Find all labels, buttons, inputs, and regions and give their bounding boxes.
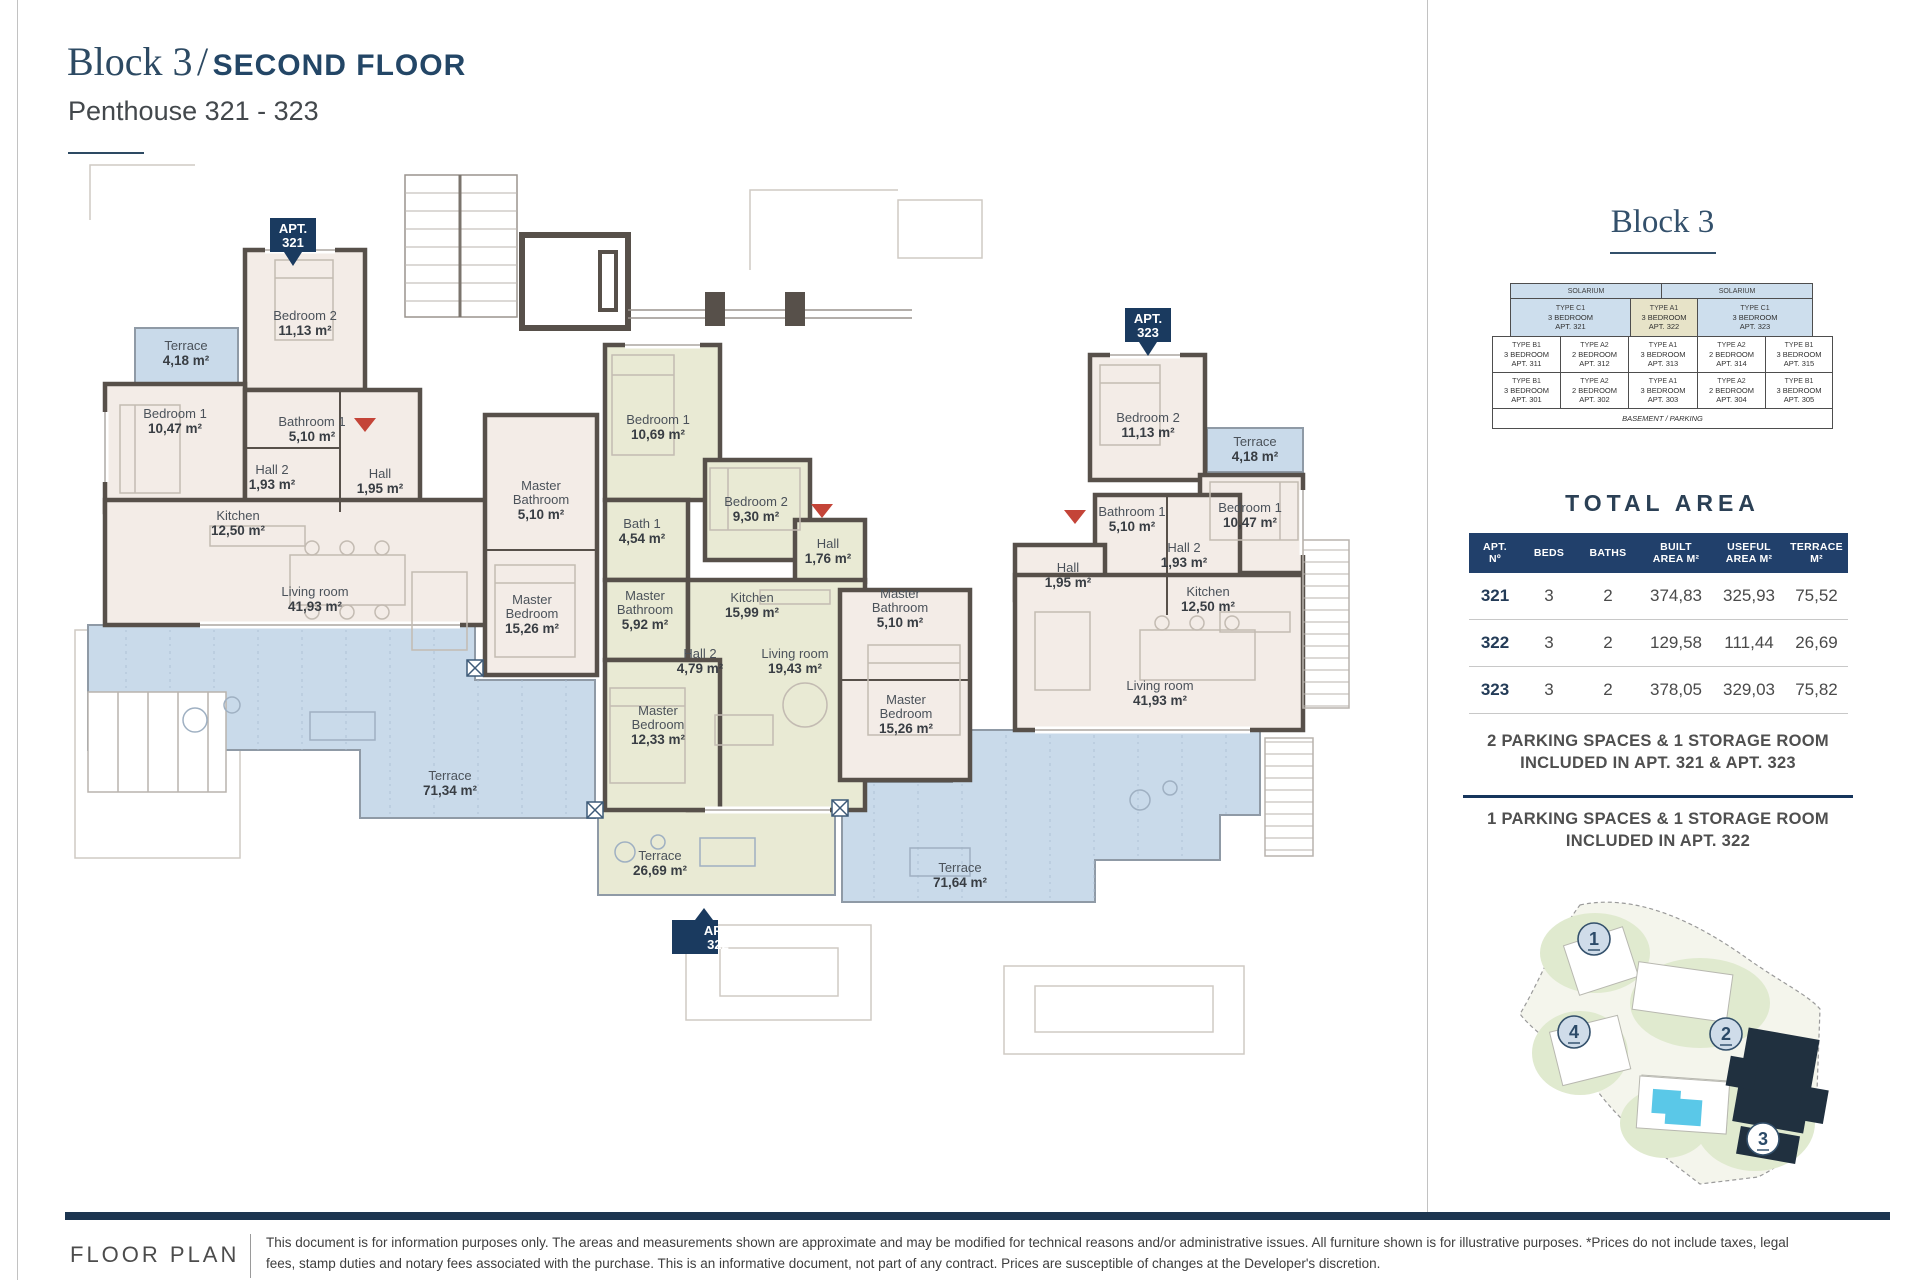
- table-row: 323 3 2 378,05 329,03 75,82: [1469, 667, 1848, 714]
- room-label: Bedroom 110,47 m²: [143, 406, 207, 436]
- site-marker-2: 2: [1710, 1018, 1742, 1050]
- room-label: MasterBathroom5,10 m²: [872, 586, 928, 630]
- room-label: Living room41,93 m²: [1126, 678, 1193, 708]
- footer-disclaimer: This document is for information purpose…: [266, 1232, 1866, 1274]
- parking-note-322: 1 PARKING SPACES & 1 STORAGE ROOM INCLUD…: [1460, 808, 1856, 852]
- room-label: Terrace4,18 m²: [1232, 434, 1279, 464]
- stack-apt-311: TYPE B13 BEDROOMAPT. 311: [1492, 336, 1561, 373]
- building-stack-diagram: SOLARIUM SOLARIUM TYPE C13 BEDROOMAPT. 3…: [1490, 283, 1835, 429]
- page-subtitle: Penthouse 321 - 323: [68, 96, 319, 127]
- footer-accent-bar: [65, 1212, 1890, 1220]
- footer-divider: [250, 1234, 251, 1278]
- room-label: Kitchen12,50 m²: [211, 508, 266, 538]
- room-label: Kitchen12,50 m²: [1181, 584, 1236, 614]
- elevator-shaft: [522, 235, 628, 328]
- svg-text:APT.322: APT.322: [704, 923, 732, 952]
- page-title-separator: /: [197, 39, 208, 84]
- parking-note-321-323: 2 PARKING SPACES & 1 STORAGE ROOM INCLUD…: [1460, 730, 1856, 774]
- table-row: 321 3 2 374,83 325,93 75,52: [1469, 573, 1848, 620]
- apt-322-badge: APT.322: [672, 908, 732, 954]
- stack-apt-302: TYPE A22 BEDROOMAPT. 302: [1560, 372, 1629, 409]
- stack-apt-321: TYPE C13 BEDROOMAPT. 321: [1510, 298, 1631, 337]
- column-header: BUILTAREA M²: [1639, 541, 1713, 565]
- stack-apt-313: TYPE A13 BEDROOMAPT. 313: [1628, 336, 1698, 373]
- room-label: Living room19,43 m²: [761, 646, 828, 676]
- room-label: Bedroom 110,69 m²: [626, 412, 690, 442]
- room-label: MasterBedroom12,33 m²: [631, 703, 686, 747]
- room-label: Bedroom 29,30 m²: [724, 494, 788, 524]
- stack-apt-315: TYPE B13 BEDROOMAPT. 315: [1765, 336, 1833, 373]
- stack-apt-312: TYPE A22 BEDROOMAPT. 312: [1560, 336, 1629, 373]
- site-map: 1 4 2 3: [1500, 893, 1882, 1188]
- footer-label: FLOOR PLAN: [70, 1242, 239, 1268]
- room-label: Terrace71,34 m²: [423, 768, 478, 798]
- column-header: APT.Nº: [1469, 541, 1521, 565]
- stack-apt-305: TYPE B13 BEDROOMAPT. 305: [1765, 372, 1833, 409]
- site-marker-4: 4: [1558, 1016, 1590, 1048]
- site-pool: [1636, 1076, 1729, 1134]
- room-label: Terrace26,69 m²: [633, 848, 688, 878]
- room-label: MasterBathroom5,10 m²: [513, 478, 569, 522]
- svg-text:1: 1: [1589, 929, 1599, 949]
- room-label: Bedroom 211,13 m²: [273, 308, 337, 338]
- stack-basement: BASEMENT / PARKING: [1492, 408, 1833, 429]
- room-label: Kitchen15,99 m²: [725, 590, 780, 620]
- column-header: BEDS: [1521, 547, 1577, 559]
- page-title-floor: SECOND FLOOR: [213, 49, 467, 82]
- room-label: Living room41,93 m²: [281, 584, 348, 614]
- site-marker-1: 1: [1578, 923, 1610, 955]
- page-left-border: [17, 0, 18, 1280]
- total-area-title: TOTAL AREA: [1490, 490, 1835, 517]
- column-header: TERRACEM²: [1785, 541, 1848, 565]
- stack-apt-323: TYPE C13 BEDROOMAPT. 323: [1697, 298, 1813, 337]
- title-underline: [68, 152, 144, 154]
- room-label: MasterBedroom15,26 m²: [505, 592, 560, 636]
- page-title: Block 3 / SECOND FLOOR: [67, 38, 466, 85]
- floor-plan-page: Block 3 / SECOND FLOOR Penthouse 321 - 3…: [0, 0, 1920, 1280]
- table-row: 322 3 2 129,58 111,44 26,69: [1469, 620, 1848, 667]
- room-label: MasterBathroom5,92 m²: [617, 588, 673, 632]
- svg-text:APT.323: APT.323: [1134, 311, 1162, 340]
- parking-divider: [1463, 795, 1853, 798]
- stack-apt-301: TYPE B13 BEDROOMAPT. 301: [1492, 372, 1561, 409]
- room-label: MasterBedroom15,26 m²: [879, 692, 934, 736]
- apt-323-badge: APT.323: [1125, 308, 1171, 356]
- room-label: Bedroom 110,47 m²: [1218, 500, 1282, 530]
- room-label: Bath 14,54 m²: [619, 516, 666, 546]
- room-label: Terrace71,64 m²: [933, 860, 988, 890]
- site-marker-3: 3: [1747, 1123, 1779, 1155]
- total-area-table: APT.Nº BEDS BATHS BUILTAREA M² USEFULARE…: [1469, 533, 1848, 714]
- terrace-322: [598, 810, 835, 895]
- column-header: USEFULAREA M²: [1713, 541, 1785, 565]
- floor-plan-drawing: Terrace4,18 m² Bedroom 211,13 m² Bedroom…: [60, 160, 1430, 1180]
- svg-text:4: 4: [1569, 1022, 1579, 1042]
- corridor-walls: [628, 292, 912, 326]
- stack-apt-304: TYPE A22 BEDROOMAPT. 304: [1697, 372, 1766, 409]
- svg-text:3: 3: [1758, 1129, 1768, 1149]
- stack-apt-314: TYPE A22 BEDROOMAPT. 314: [1697, 336, 1766, 373]
- table-header-row: APT.Nº BEDS BATHS BUILTAREA M² USEFULARE…: [1469, 533, 1848, 573]
- svg-text:2: 2: [1721, 1024, 1731, 1044]
- stack-solarium-left: SOLARIUM: [1510, 283, 1662, 299]
- common-staircase: [405, 175, 517, 317]
- room-label: Bedroom 211,13 m²: [1116, 410, 1180, 440]
- stack-apt-303: TYPE A13 BEDROOMAPT. 303: [1628, 372, 1698, 409]
- svg-text:APT.321: APT.321: [279, 221, 307, 250]
- room-label: Terrace4,18 m²: [163, 338, 210, 368]
- column-header: BATHS: [1577, 547, 1639, 559]
- stack-apt-322-highlighted: TYPE A13 BEDROOMAPT. 322: [1630, 298, 1698, 337]
- page-title-block: Block 3: [67, 39, 193, 84]
- sidebar-block-title-underline: [1610, 252, 1716, 254]
- stack-solarium-right: SOLARIUM: [1661, 283, 1813, 299]
- sidebar-block-title: Block 3: [1490, 204, 1835, 241]
